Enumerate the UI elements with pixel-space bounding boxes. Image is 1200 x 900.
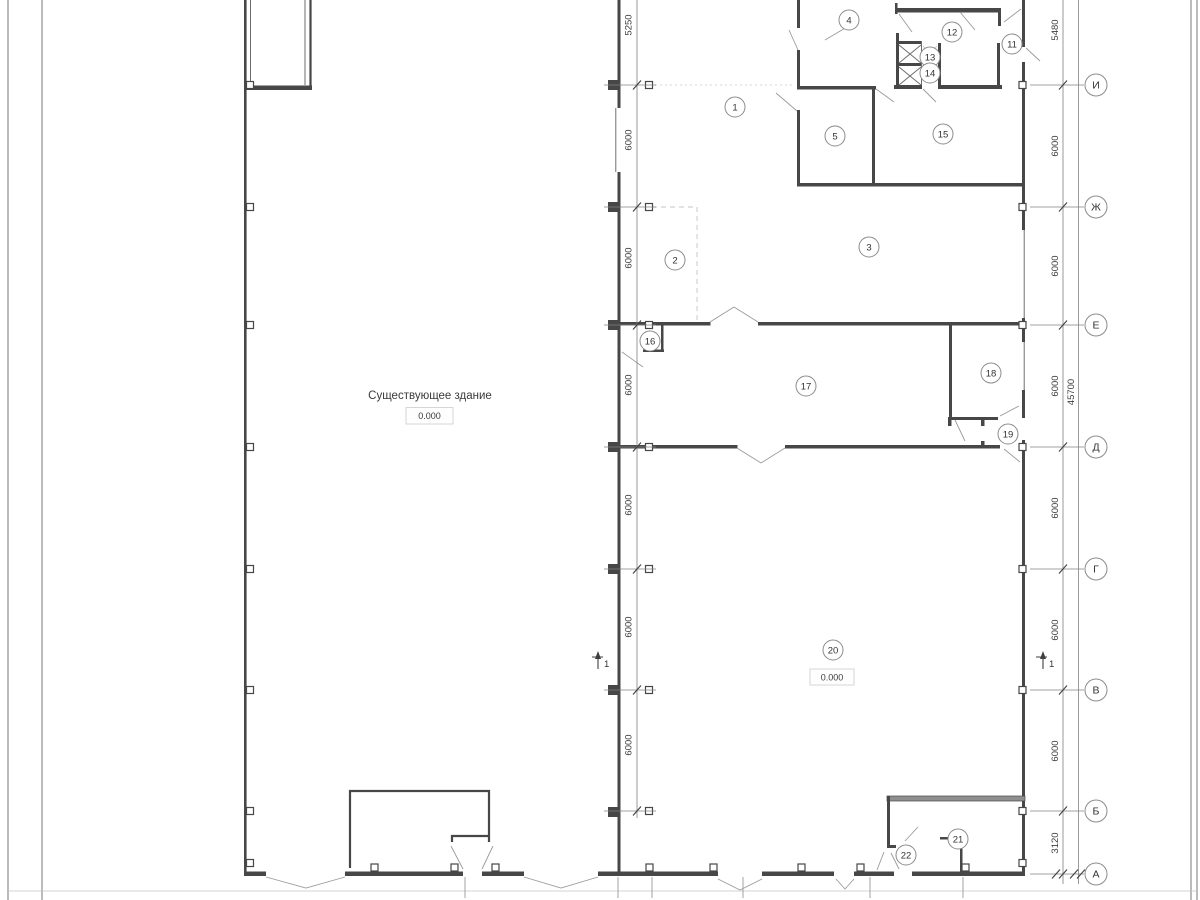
room-number: 18	[986, 368, 997, 379]
level-value: 0.000	[418, 411, 441, 421]
door-post	[948, 420, 952, 426]
room-tag-5: 5	[825, 126, 845, 146]
wall-center-facade	[618, 0, 621, 108]
wall-bottom-seg	[245, 872, 266, 877]
dim-label-right: 6000	[1050, 255, 1061, 276]
axis-label: Ж	[1091, 202, 1101, 214]
columns-center-line	[646, 82, 653, 815]
section-mark-label: 1	[1049, 659, 1054, 670]
wall-bottom-left-room	[350, 791, 489, 868]
room-tag-12: 12	[942, 22, 962, 42]
dim-label-right: 6000	[1050, 135, 1061, 156]
wall-stair-right	[997, 43, 1000, 86]
dim-label-center: 6000	[624, 374, 635, 395]
dim-label-right: 6000	[1050, 619, 1061, 640]
door-post	[981, 441, 985, 447]
wall-axis-i	[938, 85, 1002, 89]
wall-bottom-seg	[762, 872, 834, 877]
level-value: 0.000	[821, 673, 844, 683]
wall-axis-i	[894, 85, 922, 89]
room-tag-4: 4	[839, 10, 859, 30]
wall-room21-left	[887, 796, 890, 848]
wall-room18-room19-divider	[948, 417, 998, 420]
dim-label-right: 6000	[1050, 740, 1061, 761]
door-swing-leaders	[266, 9, 1040, 898]
wall-axis-i	[797, 86, 876, 90]
construction-lines	[652, 85, 795, 322]
columns-left-wall	[247, 82, 254, 867]
dim-label-center: 6000	[624, 494, 635, 515]
room-number: 17	[801, 381, 812, 392]
section-mark-left: 1	[592, 651, 609, 670]
wall-axis-d	[785, 445, 1000, 449]
wall-left	[244, 0, 247, 876]
wall-cap	[998, 8, 1001, 26]
room-tag-21: 21	[948, 829, 968, 849]
wall-room16	[661, 326, 664, 352]
wall-room5-room15-divider	[872, 88, 875, 184]
wall-right	[1022, 390, 1025, 418]
room-tag-22: 22	[896, 845, 916, 865]
walls	[244, 0, 1025, 876]
grid-stubs	[465, 877, 963, 898]
room-number: 15	[938, 129, 949, 140]
axis-label: В	[1092, 685, 1099, 697]
wall-stair-left	[938, 43, 941, 86]
dim-label-center: 6000	[624, 734, 635, 755]
axis-grid: ИЖЕДГВБА	[604, 74, 1107, 885]
wall-right	[1022, 0, 1025, 47]
axis-label: Г	[1093, 564, 1099, 576]
wall-shaft	[899, 63, 922, 66]
room-number: 14	[925, 68, 936, 79]
room-tag-14: 14	[920, 63, 940, 83]
wall-bottom-seg	[345, 872, 463, 877]
dim-label-right: 5480	[1050, 19, 1061, 40]
room-tag-19: 19	[998, 424, 1018, 444]
room-number: 20	[828, 645, 839, 656]
room-tag-11: 11	[1002, 34, 1022, 54]
room-number: 13	[925, 52, 936, 63]
room-tag-20: 20	[823, 640, 843, 660]
room-number: 2	[672, 255, 677, 266]
dim-label-right: 6000	[1050, 497, 1061, 518]
room-number: 12	[947, 27, 958, 38]
room-number: 19	[1003, 429, 1014, 440]
room-tag-1: 1	[725, 97, 745, 117]
axis-label: Д	[1092, 442, 1099, 454]
room-number: 16	[645, 336, 656, 347]
wall-bottom-seg	[598, 872, 718, 877]
wall-top-corridor	[897, 8, 1000, 13]
wall-shaft-left	[896, 33, 899, 86]
level-annotation-left: 0.000	[406, 408, 453, 425]
wall-center-facade	[618, 172, 621, 876]
dim-label-right: 6000	[1050, 375, 1061, 396]
axis-label: Б	[1093, 806, 1100, 818]
room-tag-18: 18	[981, 363, 1001, 383]
wall-room1-room4-divider	[797, 50, 800, 88]
columns	[247, 82, 1027, 872]
dim-label-right: 3120	[1050, 832, 1061, 853]
wall-room17-room18-divider	[949, 326, 952, 420]
room-number: 1	[732, 102, 737, 113]
dim-label-center: 6000	[624, 129, 635, 150]
wall-annex-inner	[251, 0, 306, 85]
dim-label-overall: 45700	[1066, 379, 1077, 405]
dim-label-center: 6000	[624, 247, 635, 268]
wall-room5-left	[797, 110, 800, 184]
room-number: 3	[866, 242, 871, 253]
level-annotation-right: 0.000	[810, 669, 854, 685]
wall-south-room15	[797, 183, 1025, 187]
room-number: 4	[846, 15, 851, 26]
dim-label-center: 5250	[624, 14, 635, 35]
section-mark-right: 1	[1036, 651, 1054, 670]
building-label: Существующее здание	[368, 390, 492, 402]
room-number: 5	[832, 131, 837, 142]
floor-plan-drawing: ИЖЕДГВБА 5250600060006000600060006000548…	[0, 0, 1200, 900]
wall-room21-foot	[887, 845, 896, 848]
room-number: 22	[901, 850, 912, 861]
wall-bottom-seg	[854, 872, 894, 877]
axis-label: А	[1092, 869, 1099, 881]
room-tag-15: 15	[933, 124, 953, 144]
room-tags: 12345111213141516171819202122	[640, 10, 1022, 865]
pilasters-center	[608, 80, 618, 817]
room-tag-17: 17	[796, 376, 816, 396]
wall-axis-e	[758, 322, 1025, 326]
section-mark-label: 1	[604, 659, 609, 670]
axis-label: Е	[1092, 320, 1099, 332]
wall-bottom-seg	[482, 872, 524, 877]
wall-cap	[895, 3, 898, 14]
wall-annex-bottom	[245, 86, 312, 91]
room-number: 21	[953, 834, 964, 845]
axis-label: И	[1092, 80, 1100, 92]
wall-room1-room4-divider	[797, 0, 800, 28]
dim-label-center: 6000	[624, 616, 635, 637]
room-number: 11	[1007, 39, 1017, 50]
wall-shaft	[899, 41, 922, 44]
room-tag-2: 2	[665, 250, 685, 270]
wall-room21-top-new	[887, 796, 1025, 801]
wall-bottom-seg	[912, 872, 1024, 877]
floor-plan-sheet: ИЖЕДГВБА 5250600060006000600060006000548…	[0, 0, 1200, 900]
room-tag-3: 3	[859, 237, 879, 257]
door-post	[981, 420, 985, 426]
room-tag-16: 16	[640, 331, 660, 351]
